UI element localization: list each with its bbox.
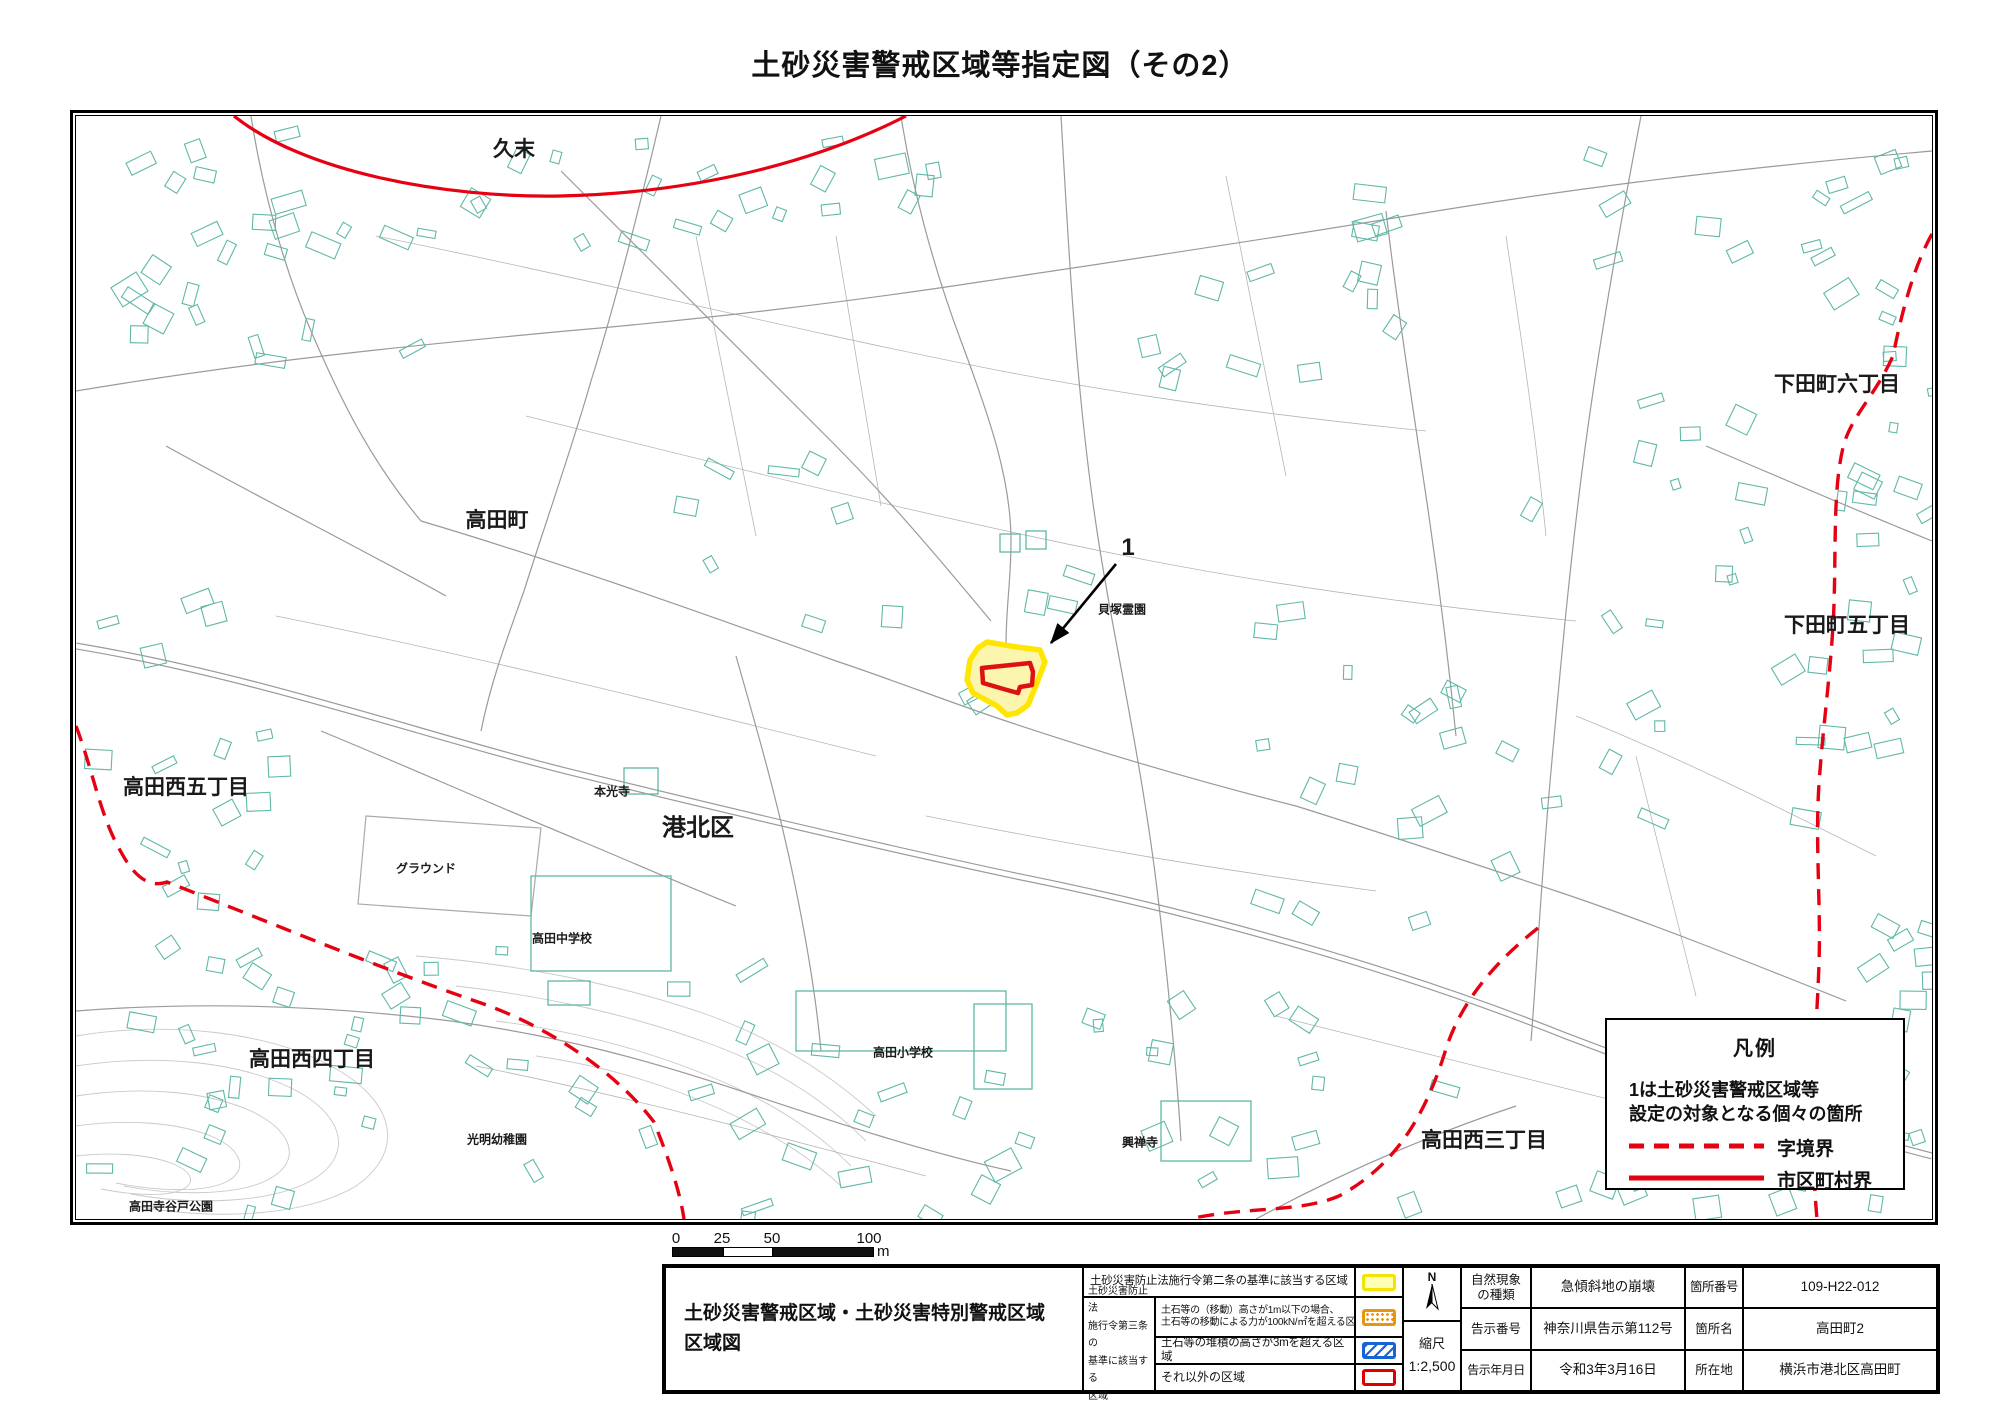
scale-unit: m	[877, 1243, 890, 1260]
poi-label-takata-jhs: 高田中学校	[532, 930, 592, 947]
poi-label-takataji-park: 高田寺谷戸公園	[129, 1198, 213, 1215]
field-value-location: 横浜市港北区高田町	[1743, 1350, 1937, 1391]
area-label-kohokuku: 港北区	[662, 808, 734, 843]
doc-title-line2: 区域図	[684, 1329, 1045, 1359]
law2-swatch-cell	[1355, 1267, 1403, 1297]
field-label-line: の種類	[1471, 1288, 1521, 1303]
scale-bar-segments	[672, 1247, 874, 1257]
map-legend-box: 凡例 1は土砂災害警戒区域等 設定の対象となる個々の箇所 字境界 市区町村界	[1605, 1018, 1905, 1190]
scale-tick-25: 25	[714, 1230, 731, 1247]
law3-row2-swatch-cell	[1355, 1337, 1403, 1364]
legend-note-line2: 設定の対象となる個々の箇所	[1629, 1100, 1862, 1126]
area-label-kusue: 久末	[493, 133, 535, 163]
field-value-phenomenon: 急傾斜地の崩壊	[1531, 1267, 1685, 1308]
field-label-site-number: 箇所番号	[1685, 1267, 1743, 1308]
compass-n-label: N	[1425, 1271, 1439, 1283]
scale-caption: 縮尺	[1409, 1333, 1456, 1355]
field-value-notice-date: 令和3年3月16日	[1531, 1350, 1685, 1391]
area-label-takatanishi4: 高田西四丁目	[249, 1043, 375, 1073]
contour-lines	[76, 956, 876, 1214]
field-label-location: 所在地	[1685, 1350, 1743, 1391]
map-canvas: 久末 高田町 下田町六丁目 下田町五丁目 高田西五丁目 港北区 本光寺 グラウン…	[75, 115, 1933, 1220]
field-label-notice-date: 告示年月日	[1461, 1350, 1531, 1391]
field-value-notice-number: 神奈川県告示第112号	[1531, 1308, 1685, 1350]
law3-row2-cell: 土石等の堆積の高さが3mを超える区域	[1155, 1337, 1355, 1364]
area-label-takatanishi3: 高田西三丁目	[1421, 1124, 1547, 1154]
scale-bar: 0 25 50 100 m	[672, 1230, 902, 1262]
legend-note-line1: 1は土砂災害警戒区域等	[1629, 1076, 1819, 1102]
poi-label-ground: グラウンド	[396, 860, 456, 877]
scale-value: 1:2,500	[1409, 1355, 1456, 1379]
legend-item-label: 字境界	[1777, 1134, 1834, 1161]
dashed-red-line-sample	[1629, 1142, 1764, 1150]
doc-title-cell: 土砂災害警戒区域・土砂災害特別警戒区域 区域図	[665, 1267, 1083, 1391]
area-label-shimodacho5: 下田町五丁目	[1784, 609, 1910, 639]
law3-group-line: 施行令第三条の	[1088, 1318, 1154, 1353]
law3-row1-cell: 土石等の（移動）高さが1m以下の場合、 土石等の移動による力が100kN/㎡を超…	[1155, 1297, 1355, 1337]
poi-label-honkoji: 本光寺	[594, 783, 630, 800]
map-frame: 久末 高田町 下田町六丁目 下田町五丁目 高田西五丁目 港北区 本光寺 グラウン…	[70, 110, 1938, 1225]
hazard-site-number: 1	[1121, 534, 1134, 562]
scale-tick-0: 0	[672, 1230, 680, 1247]
law3-row1-swatch-cell	[1355, 1297, 1403, 1337]
field-label-line: 自然現象	[1471, 1273, 1521, 1288]
compass-cell: N	[1403, 1267, 1461, 1321]
scale-tick-50: 50	[764, 1230, 781, 1247]
legend-item-aza-boundary: 字境界	[1629, 1134, 1885, 1158]
page-title: 土砂災害警戒区域等指定図（その2）	[0, 42, 2000, 84]
law3-group-line: 土砂災害防止法	[1088, 1283, 1154, 1318]
yellow-zone-swatch	[1362, 1274, 1396, 1291]
solid-red-line-sample	[1629, 1174, 1764, 1182]
poi-label-kozenji: 興禅寺	[1122, 1134, 1158, 1151]
aza-boundary-bottom	[1189, 928, 1538, 1219]
legend-item-label: 市区町村界	[1777, 1166, 1872, 1193]
law3-row1-line2: 土石等の移動による力が100kN/㎡を超える区域	[1161, 1317, 1365, 1329]
field-value-site-number: 109-H22-012	[1743, 1267, 1937, 1308]
hazard-zone	[967, 642, 1045, 715]
law3-row1-line1: 土石等の（移動）高さが1m以下の場合、	[1161, 1305, 1365, 1317]
info-table: 土砂災害警戒区域・土砂災害特別警戒区域 区域図 土砂災害防止法施行令第二条の基準…	[662, 1264, 1940, 1394]
doc-title-line1: 土砂災害警戒区域・土砂災害特別警戒区域	[684, 1299, 1045, 1329]
blue-hatched-swatch	[1362, 1342, 1396, 1359]
law3-group-line: 区域	[1088, 1388, 1154, 1406]
scale-cell: 縮尺 1:2,500	[1403, 1321, 1461, 1391]
area-label-takatacho: 高田町	[466, 504, 529, 534]
field-label-site-name: 箇所名	[1685, 1308, 1743, 1350]
legend-title: 凡例	[1607, 1032, 1903, 1061]
north-arrow-icon	[1425, 1283, 1439, 1311]
field-value-site-name: 高田町2	[1743, 1308, 1937, 1350]
field-label-notice-number: 告示番号	[1461, 1308, 1531, 1350]
law3-row3-swatch-cell	[1355, 1364, 1403, 1391]
law3-row3-cell: それ以外の区域	[1155, 1364, 1355, 1391]
poi-label-kaizuka-cemetery: 貝塚霊園	[1098, 601, 1146, 618]
orange-dotted-swatch	[1362, 1309, 1396, 1326]
area-label-takatanishi5: 高田西五丁目	[123, 771, 249, 801]
municipal-boundary-line	[234, 116, 906, 196]
law3-group-cell: 土砂災害防止法 施行令第三条の 基準に該当する 区域	[1083, 1297, 1155, 1391]
poi-label-komyo-kindergarten: 光明幼稚園	[467, 1131, 527, 1148]
poi-label-takata-es: 高田小学校	[873, 1044, 933, 1061]
field-label-phenomenon: 自然現象 の種類	[1461, 1267, 1531, 1308]
area-label-shimodacho6: 下田町六丁目	[1774, 368, 1900, 398]
red-outline-swatch	[1362, 1369, 1396, 1386]
law3-group-line: 基準に該当する	[1088, 1353, 1154, 1388]
legend-item-municipal-boundary: 市区町村界	[1629, 1166, 1885, 1190]
